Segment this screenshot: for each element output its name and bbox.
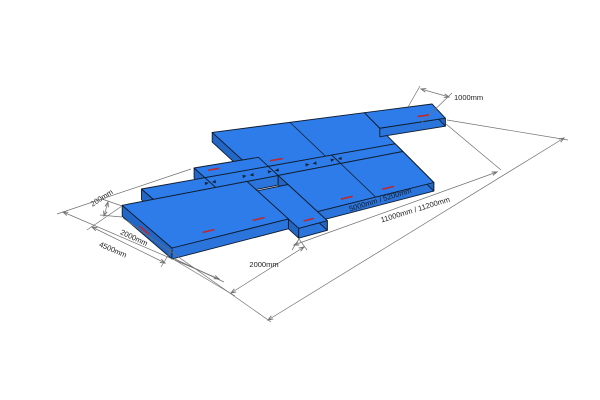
dimension-line (421, 89, 449, 97)
dimension-arrowhead (559, 138, 564, 142)
dimension-line (231, 247, 304, 293)
dimension-extension-line (408, 86, 420, 107)
dimension-arrowhead (299, 247, 304, 251)
technical-drawing-canvas: 200mm2000mm4500mm2000mm5000mm / 5200mm11… (0, 0, 600, 400)
dim-label-module-length: 2000mm (249, 260, 278, 269)
dimension-extension-line (100, 215, 122, 217)
dimension-extension-line (87, 206, 122, 230)
dimension-arrowhead (268, 316, 273, 320)
isometric-platform-drawing: 200mm2000mm4500mm2000mm5000mm / 5200mm11… (0, 0, 600, 400)
dimension-extension-line (446, 124, 501, 170)
dim-label-height: 200mm (89, 187, 115, 208)
dimension-extension-line (447, 120, 568, 140)
dim-label-end-width: 1000mm (454, 93, 483, 102)
dimension-arrowhead (231, 289, 236, 293)
